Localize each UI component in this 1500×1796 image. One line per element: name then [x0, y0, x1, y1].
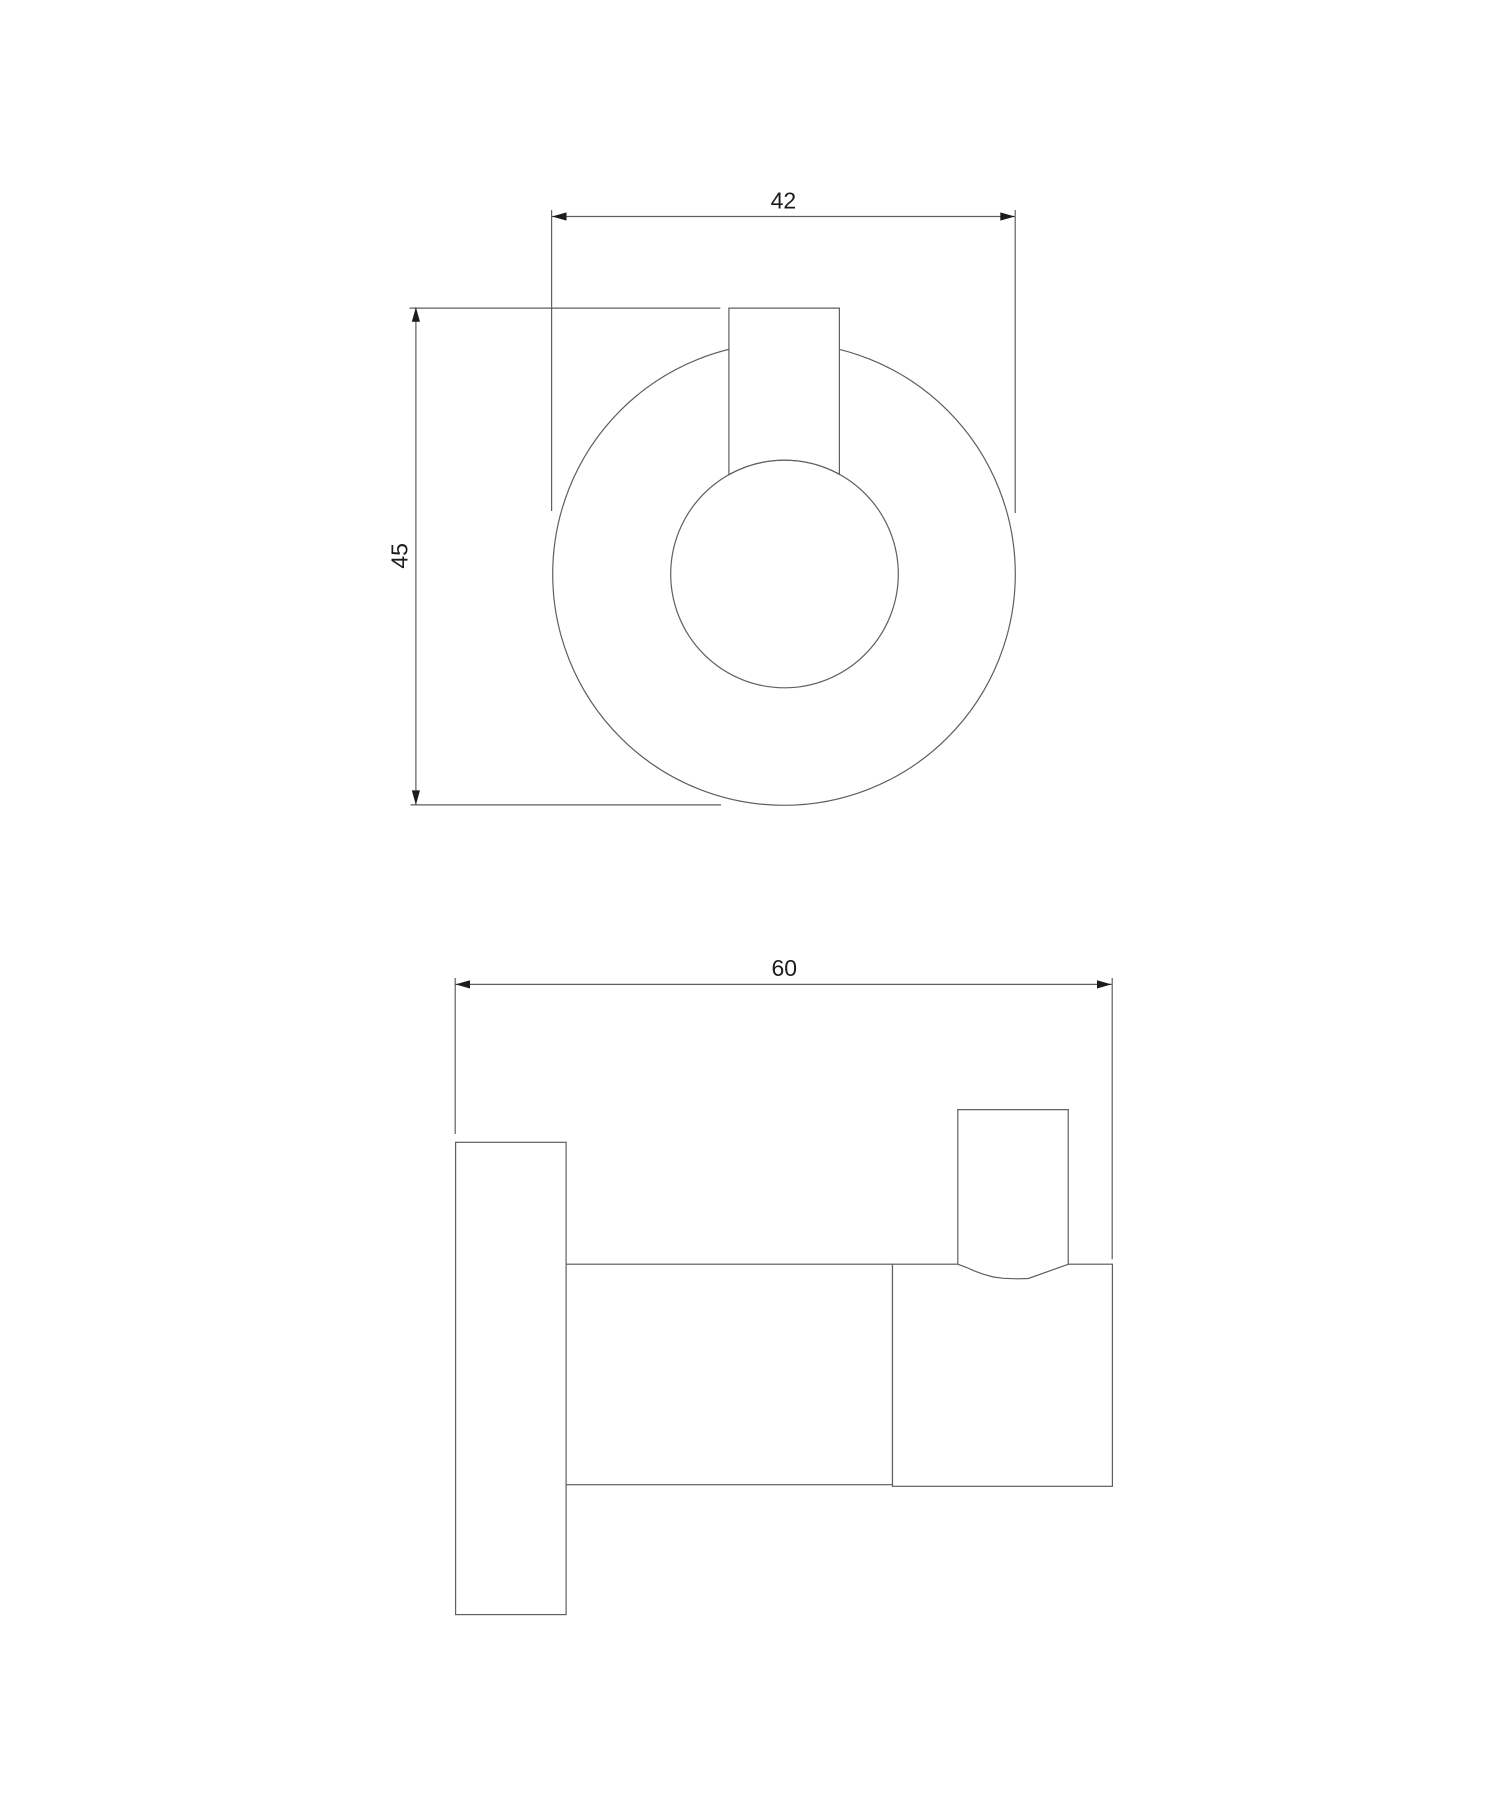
svg-text:42: 42	[771, 188, 797, 214]
svg-text:60: 60	[772, 955, 798, 981]
svg-text:45: 45	[386, 543, 412, 569]
